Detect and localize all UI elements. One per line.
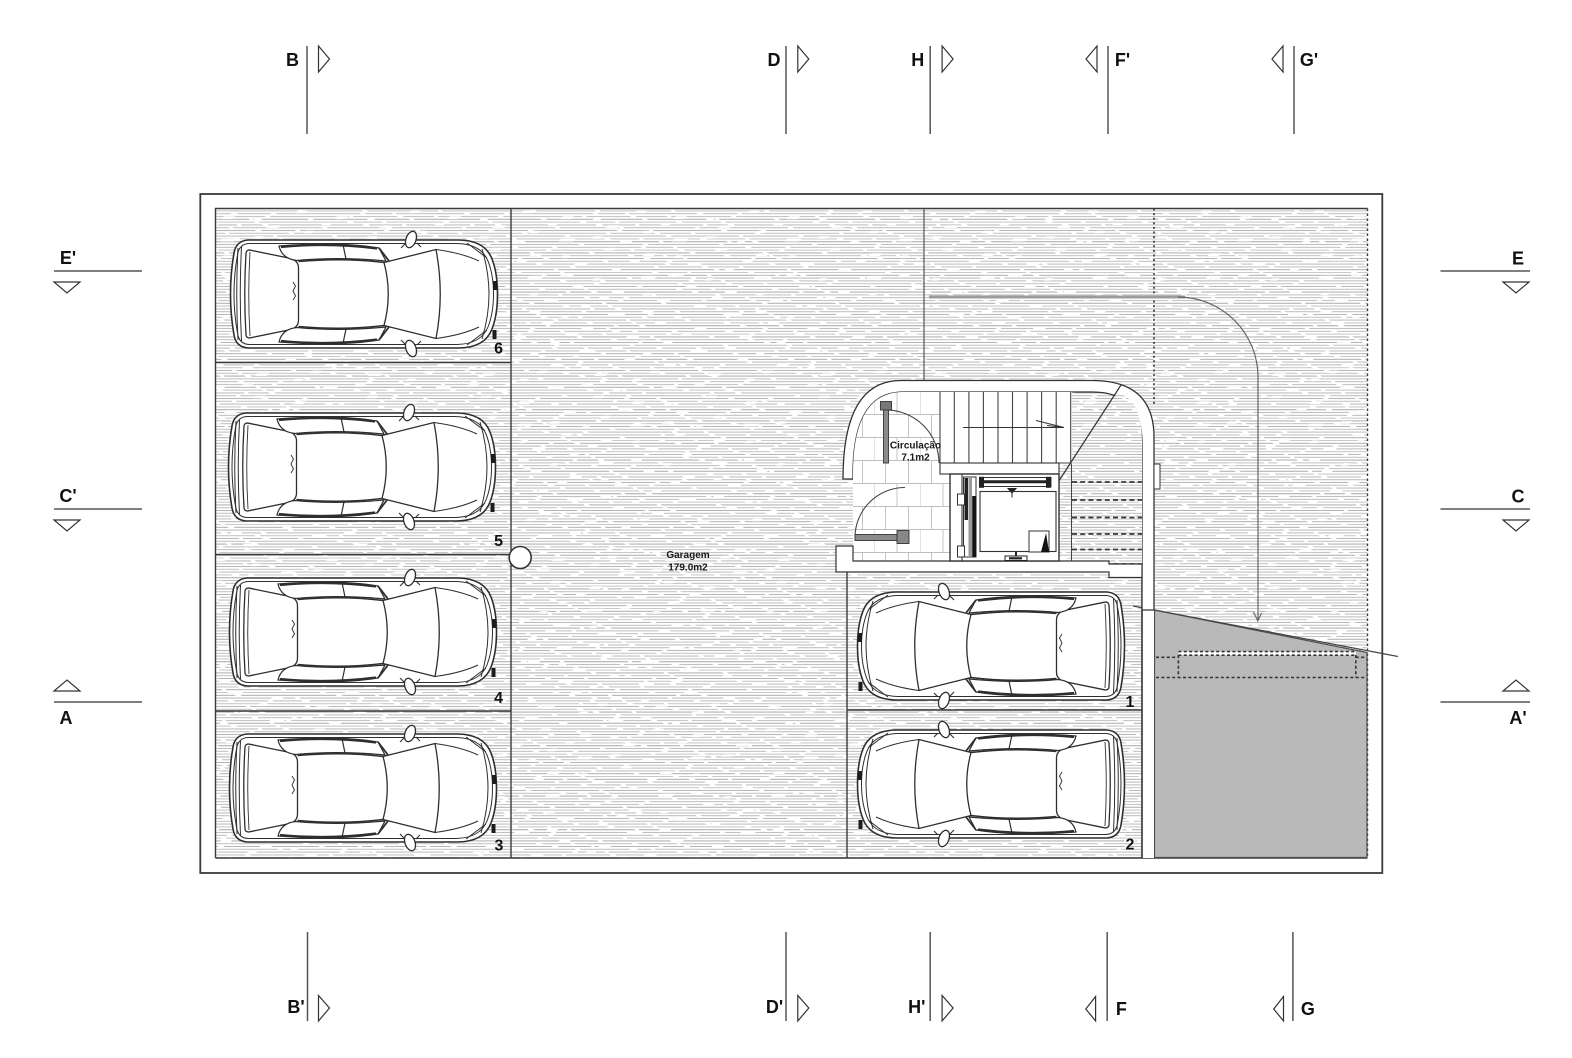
svg-text:C': C' bbox=[59, 486, 76, 506]
svg-text:A: A bbox=[60, 708, 73, 728]
svg-text:2: 2 bbox=[1126, 837, 1135, 854]
svg-text:E': E' bbox=[60, 248, 76, 268]
svg-text:E: E bbox=[1512, 249, 1524, 269]
svg-text:H': H' bbox=[908, 997, 925, 1017]
svg-text:F: F bbox=[1116, 999, 1127, 1019]
svg-text:3: 3 bbox=[495, 838, 504, 855]
svg-text:C: C bbox=[1512, 487, 1525, 507]
svg-text:6: 6 bbox=[494, 341, 503, 358]
svg-text:F': F' bbox=[1115, 50, 1130, 70]
svg-text:Garagem: Garagem bbox=[666, 550, 709, 561]
svg-text:4: 4 bbox=[494, 690, 503, 707]
svg-text:D': D' bbox=[766, 997, 783, 1017]
svg-text:1: 1 bbox=[1126, 694, 1135, 711]
svg-text:7.1m2: 7.1m2 bbox=[901, 453, 930, 464]
svg-text:G': G' bbox=[1300, 50, 1318, 70]
svg-text:G: G bbox=[1301, 999, 1315, 1019]
svg-text:5: 5 bbox=[494, 533, 503, 550]
svg-text:Circulação: Circulação bbox=[890, 441, 941, 452]
svg-text:H: H bbox=[911, 50, 924, 70]
svg-text:A': A' bbox=[1509, 708, 1526, 728]
svg-text:179.0m2: 179.0m2 bbox=[668, 562, 708, 573]
svg-text:D: D bbox=[768, 50, 781, 70]
svg-text:B': B' bbox=[287, 997, 304, 1017]
svg-text:B: B bbox=[286, 50, 299, 70]
